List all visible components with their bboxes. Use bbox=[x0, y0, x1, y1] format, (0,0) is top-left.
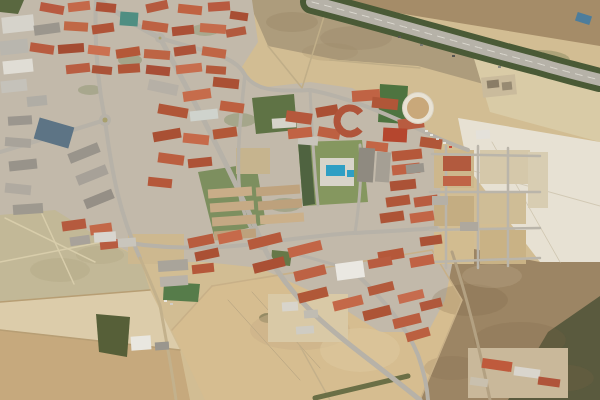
terrain-texture bbox=[266, 12, 318, 32]
vehicle bbox=[498, 66, 501, 68]
building-roof bbox=[282, 301, 299, 311]
building-roof bbox=[64, 21, 89, 32]
building-roof bbox=[460, 222, 478, 231]
kids-pool bbox=[347, 170, 354, 177]
building-roof bbox=[0, 39, 29, 56]
building-roof bbox=[502, 81, 513, 90]
building-roof bbox=[5, 137, 32, 148]
vehicle bbox=[430, 134, 433, 136]
building-roof bbox=[27, 95, 48, 107]
vehicle bbox=[420, 44, 423, 46]
building-roof bbox=[357, 147, 375, 182]
terrain-texture bbox=[30, 258, 90, 282]
vehicle bbox=[170, 303, 173, 305]
building-roof bbox=[131, 335, 152, 350]
building-roof bbox=[118, 63, 141, 74]
building-roof bbox=[375, 152, 391, 183]
terrain-texture bbox=[76, 246, 124, 264]
building-roof bbox=[443, 156, 471, 171]
empty-plot bbox=[236, 148, 270, 174]
building-roof bbox=[120, 11, 139, 26]
building-roof bbox=[8, 115, 33, 126]
empty-plot bbox=[528, 152, 548, 208]
building-roof bbox=[206, 65, 227, 74]
building-roof bbox=[443, 176, 471, 186]
building-roof bbox=[158, 259, 189, 272]
roundabout-north-island bbox=[159, 37, 162, 40]
building-roof bbox=[383, 127, 408, 142]
building-roof bbox=[304, 310, 319, 319]
empty-plot bbox=[480, 192, 526, 224]
vehicle bbox=[452, 55, 455, 57]
vehicle bbox=[398, 36, 401, 38]
trees-southwest bbox=[96, 314, 130, 357]
building-roof bbox=[200, 23, 227, 34]
satellite-map-canvas bbox=[0, 0, 600, 400]
building-roof bbox=[432, 196, 448, 205]
vehicle bbox=[443, 142, 446, 144]
building-roof bbox=[208, 1, 231, 12]
vehicle bbox=[164, 300, 167, 302]
building-roof bbox=[160, 275, 189, 287]
building-roof bbox=[487, 79, 500, 88]
vehicle bbox=[449, 146, 452, 148]
vehicle bbox=[425, 130, 428, 132]
bullring bbox=[405, 95, 431, 121]
roundabout-west-island bbox=[103, 118, 108, 123]
terrain-texture bbox=[462, 264, 522, 288]
building-roof bbox=[476, 130, 491, 140]
building-roof bbox=[1, 14, 34, 33]
building-roof bbox=[296, 325, 315, 334]
building-roof bbox=[144, 49, 171, 60]
satellite-image-viewport bbox=[0, 0, 600, 400]
building-roof bbox=[155, 342, 170, 351]
building-roof bbox=[406, 163, 425, 174]
building-roof bbox=[13, 203, 44, 215]
vehicle bbox=[436, 138, 439, 140]
building-roof bbox=[94, 231, 117, 243]
building-roof bbox=[118, 237, 137, 247]
building-roof bbox=[58, 43, 85, 54]
swimming-pool bbox=[326, 165, 345, 176]
